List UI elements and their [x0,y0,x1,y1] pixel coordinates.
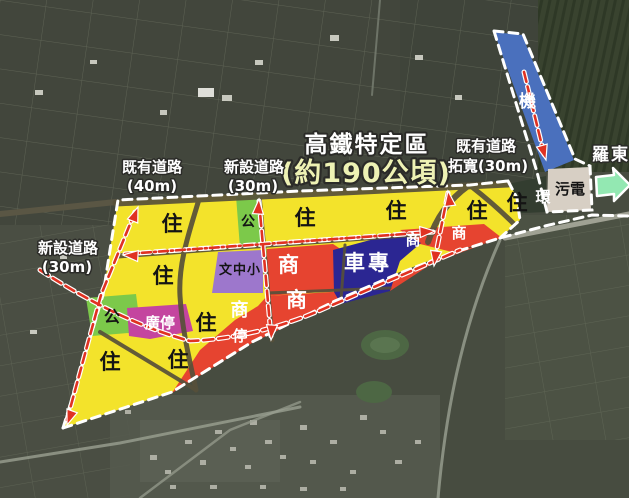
zone-label-residential: 住 [153,264,174,288]
zone-label-commercial: 商 [286,288,310,312]
road-label-widened-30m-l1: 既有道路 [456,137,517,155]
zone-label-commercial: 商 [278,253,302,277]
road-label-existing-40m-l1: 既有道路 [122,158,183,176]
road-label-new-30m-top-l2: (30m) [228,177,278,195]
zone-label-commercial: 商 [231,299,252,321]
direction-label-luodong: 羅東 [592,144,629,165]
zone-label-parking: 停 [232,327,247,345]
zone-label-commercial: 商 [451,224,466,242]
zone-label-residential: 住 [507,191,528,215]
zone-label-residential: 住 [467,199,488,223]
map-area-subtitle: (約190公頃) [281,157,451,189]
road-label-new-30m-top-l1: 新設道路 [224,158,285,176]
road-label-new-30m-west-l1: 新設道路 [38,239,99,257]
zone-label-residential: 住 [100,350,121,374]
zone-label-rail-depot: 機 [519,91,539,112]
road-label-new-30m-west-l2: (30m) [42,258,92,276]
zone-label-vehicle-depot: 車專 [344,251,392,275]
zone-label-residential: 住 [386,199,407,223]
zone-label-sewage-power: 污電 [555,180,585,198]
zone-label-environment: 環 [535,188,551,206]
zone-label-commercial: 商 [405,231,420,249]
zone-label-plaza-parking: 廣停 [145,314,175,332]
road-label-widened-30m-l2: 拓寬(30m) [448,157,528,175]
zoning-map-screenshot: 高鐵特定區 (約190公頃) 既有道路 (40m) 新設道路 (30m) 既有道… [0,0,629,498]
zoning-map: 高鐵特定區 (約190公頃) 既有道路 (40m) 新設道路 (30m) 既有道… [0,0,629,498]
map-title: 高鐵特定區 [305,131,430,158]
zone-label-park: 公 [104,307,120,326]
zone-label-park: 公 [241,214,255,230]
zone-label-school: 文中小 [219,262,261,278]
zone-label-residential: 住 [162,212,183,236]
road-label-existing-40m-l2: (40m) [127,177,177,195]
zone-label-residential: 住 [295,206,316,230]
zone-label-residential: 住 [168,348,189,372]
zone-label-residential: 住 [196,311,217,335]
